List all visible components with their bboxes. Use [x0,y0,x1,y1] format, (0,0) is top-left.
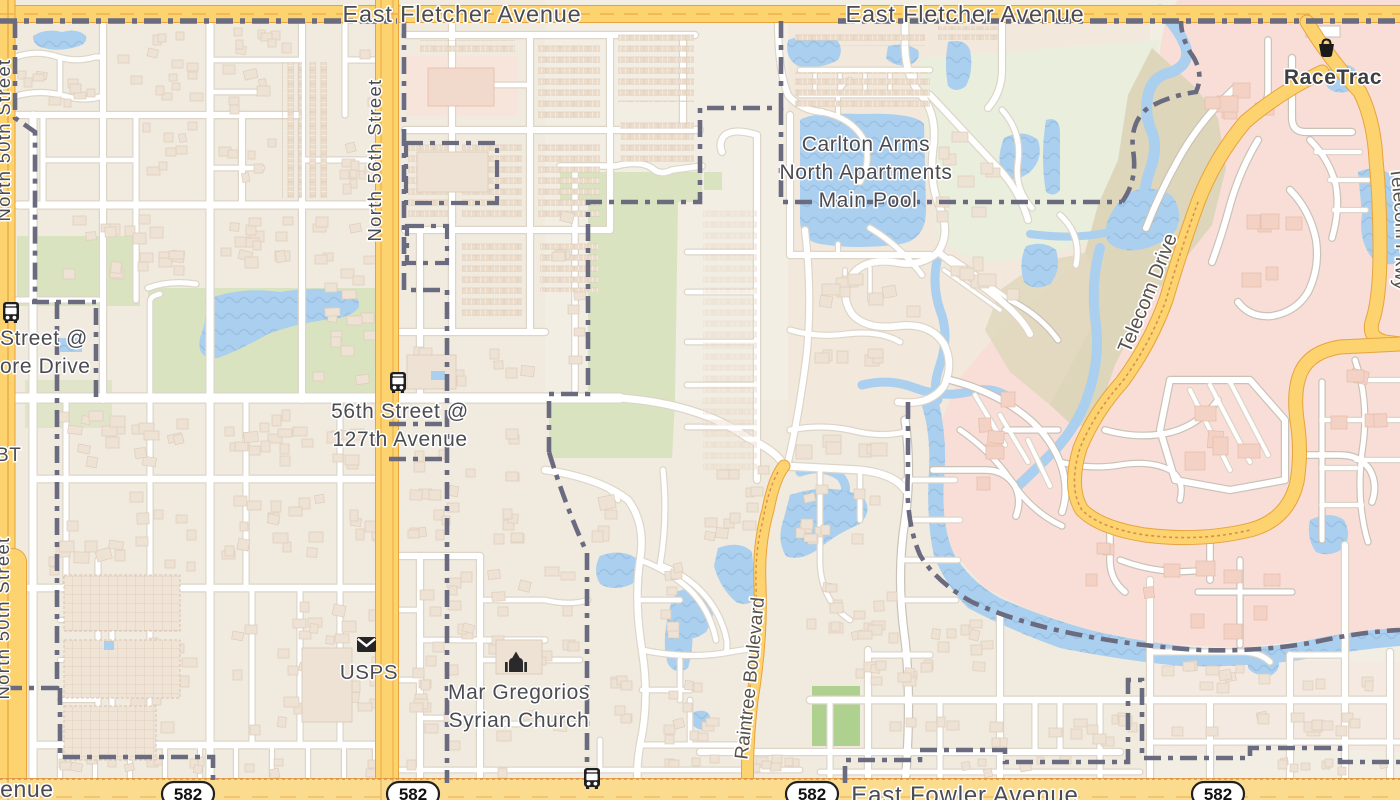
svg-text:56th Street @: 56th Street @ [331,400,469,423]
svg-text:East Fletcher Avenue: East Fletcher Avenue [343,1,582,27]
svg-text:Mar Gregorios: Mar Gregorios [448,681,590,704]
svg-text:North 56th Street: North 56th Street [364,79,385,242]
svg-text:BT: BT [0,445,21,466]
svg-text:North Apartments: North Apartments [779,161,952,184]
svg-text:Street @: Street @ [0,327,88,350]
svg-text:582: 582 [174,785,202,800]
svg-text:Syrian Church: Syrian Church [449,709,590,732]
svg-text:North 50th Street: North 50th Street [0,537,13,700]
svg-text:Carlton Arms: Carlton Arms [802,133,931,156]
svg-text:East Fowler Avenue: East Fowler Avenue [851,782,1078,800]
svg-text:Main Pool: Main Pool [819,189,918,212]
svg-text:North 50th Street: North 50th Street [0,59,14,222]
svg-text:RaceTrac: RaceTrac [1284,66,1382,89]
svg-text:ore Drive: ore Drive [0,355,91,378]
svg-text:127th Avenue: 127th Avenue [332,428,467,451]
svg-text:582: 582 [399,785,427,800]
svg-text:582: 582 [798,785,826,800]
svg-text:East Fletcher Avenue: East Fletcher Avenue [846,1,1085,27]
svg-text:venue: venue [0,776,54,800]
svg-text:582: 582 [1204,785,1232,800]
svg-text:USPS: USPS [340,661,398,684]
